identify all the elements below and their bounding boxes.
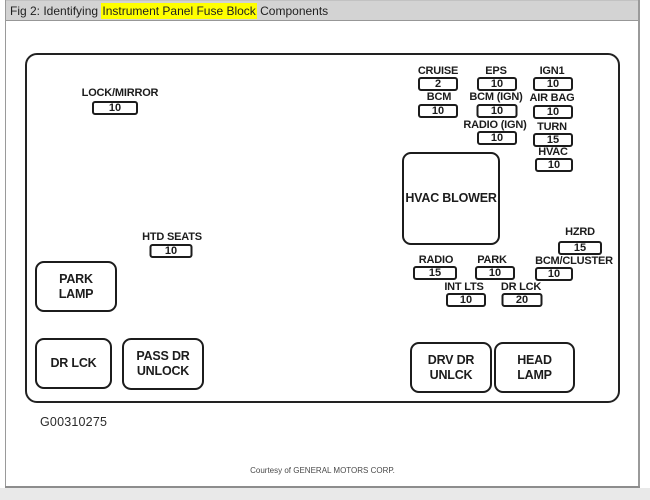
fuse-label-park: PARK xyxy=(477,254,507,266)
figure-title-bar: Fig 2: Identifying Instrument Panel Fuse… xyxy=(6,0,638,21)
fuse-label-htd-seats: HTD SEATS xyxy=(142,231,202,243)
component-head-lamp: HEAD LAMP xyxy=(494,342,575,393)
fuse-label-eps: EPS xyxy=(485,65,506,77)
figure-id: G00310275 xyxy=(40,415,107,429)
fuse-label-lock-mirror: LOCK/MIRROR xyxy=(82,87,159,99)
component-pass-dr-unlock: PASS DR UNLOCK xyxy=(122,338,204,390)
fuse-amp-htd-seats: 10 xyxy=(150,244,193,258)
fuse-amp-air-bag: 10 xyxy=(533,105,573,119)
fuse-amp-dr-lck-fuse: 20 xyxy=(502,293,543,307)
component-park-lamp: PARK LAMP xyxy=(35,261,117,312)
fuse-amp-radio: 15 xyxy=(413,266,457,280)
fuse-label-air-bag: AIR BAG xyxy=(529,92,574,104)
fuse-amp-ign1: 10 xyxy=(533,77,573,91)
fuse-label-dr-lck-fuse: DR LCK xyxy=(501,281,541,293)
fuse-label-bcm-ign: BCM (IGN) xyxy=(469,91,522,103)
fuse-label-bcm: BCM xyxy=(427,91,451,103)
fuse-amp-lock-mirror: 10 xyxy=(92,101,138,115)
fuse-label-turn: TURN xyxy=(537,121,567,133)
fuse-amp-int-lts: 10 xyxy=(446,293,486,307)
fuse-amp-hzrd: 15 xyxy=(558,241,602,255)
fuse-amp-cruise: 2 xyxy=(418,77,458,91)
fuse-label-cruise: CRUISE xyxy=(418,65,458,77)
title-prefix: Fig 2: Identifying xyxy=(10,4,101,18)
fuse-amp-bcm-cluster: 10 xyxy=(535,267,573,281)
fuse-amp-hvac: 10 xyxy=(535,158,573,172)
fuse-label-hvac: HVAC xyxy=(538,146,568,158)
figure-viewer: Fig 2: Identifying Instrument Panel Fuse… xyxy=(0,0,650,500)
fuse-label-ign1: IGN1 xyxy=(540,65,565,77)
fuse-label-bcm-cluster: BCM/CLUSTER xyxy=(535,255,613,267)
fuse-label-int-lts: INT LTS xyxy=(444,281,483,293)
fuse-label-hzrd: HZRD xyxy=(565,226,595,238)
page-margin-strip xyxy=(0,488,650,500)
fuse-amp-eps: 10 xyxy=(477,77,517,91)
fuse-amp-bcm: 10 xyxy=(418,104,458,118)
fuse-amp-bcm-ign: 10 xyxy=(477,104,518,118)
component-dr-lck: DR LCK xyxy=(35,338,112,389)
courtesy-note: Courtesy of GENERAL MOTORS CORP. xyxy=(0,466,645,475)
component-hvac-blower: HVAC BLOWER xyxy=(402,152,500,245)
fuse-amp-radio-ign: 10 xyxy=(477,131,517,145)
component-drv-dr-unlck: DRV DR UNLCK xyxy=(410,342,492,393)
page-border-left xyxy=(5,0,6,488)
title-search-highlight: Instrument Panel Fuse Block xyxy=(101,3,256,19)
fuse-amp-turn: 15 xyxy=(533,133,573,147)
fuse-label-radio-ign: RADIO (IGN) xyxy=(463,119,526,131)
fuse-amp-park: 10 xyxy=(475,266,515,280)
page-border-right xyxy=(638,0,640,488)
fuse-label-radio: RADIO xyxy=(419,254,453,266)
title-suffix: Components xyxy=(257,4,328,18)
